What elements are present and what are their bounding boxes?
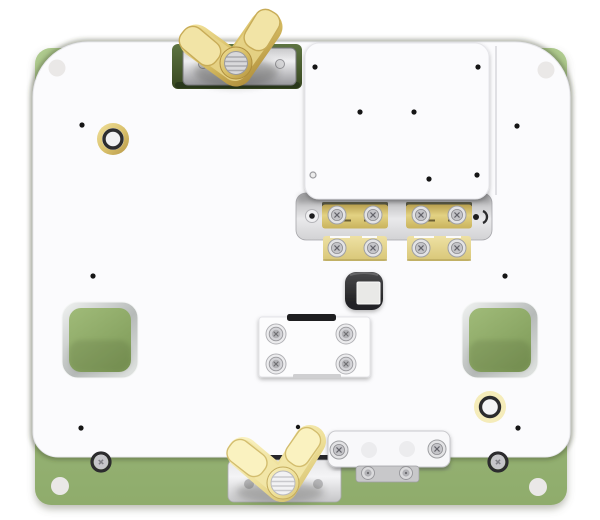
block-screw (336, 324, 356, 344)
clamp-bar-top-left (322, 202, 388, 229)
stud-end (224, 52, 248, 75)
rail-screw (330, 441, 348, 459)
block-screw (266, 354, 286, 374)
tab-hole-bottom-left (51, 477, 69, 495)
lower-plate-screw (362, 467, 375, 480)
pin-hole (515, 425, 520, 430)
pin-hole (411, 109, 416, 114)
clamp-bar-top-right (406, 202, 472, 229)
fixture-render-stage (0, 0, 600, 520)
block-bottom-strip (293, 374, 341, 378)
rail-ghost-hole (361, 442, 377, 458)
tab-hole-top-right (538, 62, 555, 79)
empty-hole (310, 172, 316, 178)
pin-hole (79, 122, 84, 127)
pin-hole (296, 425, 300, 429)
base-plate-pin-left (309, 213, 315, 219)
pocket-right (462, 302, 538, 378)
pocket-left (62, 302, 138, 378)
top-clamp-assembly (172, 5, 302, 89)
clamp-bar-bottom-left (323, 236, 387, 261)
tab-hole-bottom-right (529, 478, 547, 496)
rail-ghost-hole (399, 441, 415, 457)
rail-screw (428, 440, 446, 458)
stud-end (271, 471, 295, 495)
socket-insert (357, 282, 380, 304)
fixture-render (0, 0, 600, 520)
pin-hole (475, 64, 480, 69)
dut-assembly (296, 43, 496, 261)
pocket-green-vignette (469, 340, 531, 372)
base-plate-pin-right (473, 214, 479, 220)
block-top-strip (287, 314, 336, 321)
pocket-green-vignette (69, 340, 131, 372)
pin-hole (312, 64, 317, 69)
green-strip-screw-left (92, 453, 110, 471)
pin-hole (502, 273, 507, 278)
dut-plate (305, 43, 489, 199)
bushing-bottom-right (474, 391, 506, 423)
pin-hole (426, 176, 431, 181)
green-strip-screw-right (489, 453, 507, 471)
lower-plate-screw (400, 467, 413, 480)
pin-hole (90, 273, 95, 278)
center-block (259, 314, 370, 378)
pin-hole (78, 425, 83, 430)
bushing-top-left (97, 123, 129, 155)
clamp-bar-bottom-right (407, 236, 471, 261)
bracket-hole (276, 60, 285, 69)
pin-hole (474, 172, 479, 177)
tab-hole-top-left (49, 60, 66, 77)
block-screw (266, 324, 286, 344)
block-screw (336, 354, 356, 374)
pin-hole (357, 109, 362, 114)
socket (345, 272, 383, 310)
pin-hole (514, 123, 519, 128)
